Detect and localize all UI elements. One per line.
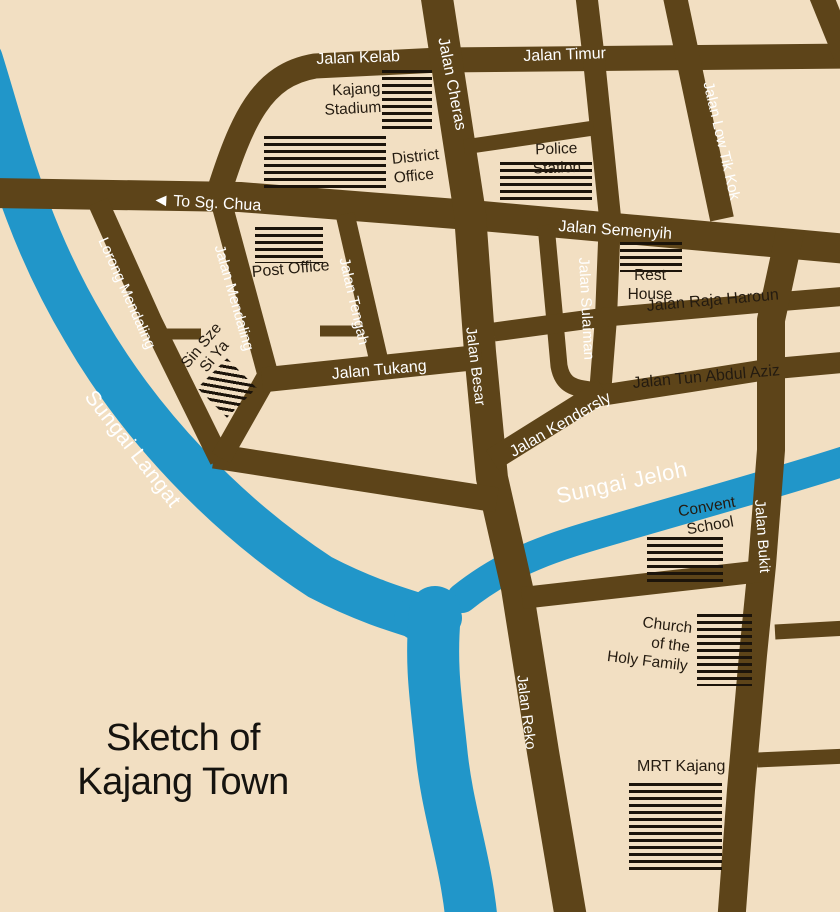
map-title-line2: Kajang Town xyxy=(63,760,303,804)
building-convent-school xyxy=(647,537,723,582)
building-church-holy-family xyxy=(697,614,752,686)
label-police-station: Police Station xyxy=(518,139,595,179)
label-mrt-kajang: MRT Kajang xyxy=(637,757,725,777)
road-label-jalan-timur: Jalan Timur xyxy=(523,45,606,66)
map-title-line1: Sketch of xyxy=(63,716,303,760)
road-label-jalan-kelab: Jalan Kelab xyxy=(316,48,400,69)
building-mrt-kajang xyxy=(629,783,722,874)
left-arrow-icon: ◀ xyxy=(155,191,167,208)
label-police-station-line2: Station xyxy=(519,158,596,180)
label-district-office: District Office xyxy=(391,146,442,189)
label-rest-house-line1: Rest xyxy=(616,267,684,286)
label-rest-house: Rest House xyxy=(616,267,684,305)
road-stub-bukit-lower xyxy=(757,756,840,760)
road-tukang-southeast-extension xyxy=(214,456,497,500)
map-border-bottom xyxy=(0,912,840,918)
road-stub-bukit-upper xyxy=(775,628,840,632)
building-district-office xyxy=(264,136,386,192)
river-merged-path xyxy=(433,612,472,918)
road-convent-church xyxy=(522,571,762,598)
kajang-town-sketch-map: Jalan Kelab Jalan Timur Jalan Cheras Jal… xyxy=(0,0,840,918)
map-title: Sketch of Kajang Town xyxy=(63,716,303,804)
label-rest-house-line2: House xyxy=(616,286,684,305)
direction-sign-label: To Sg. Chua xyxy=(173,193,262,215)
label-kajang-stadium: Kajang Stadium xyxy=(302,80,382,122)
building-kajang-stadium xyxy=(382,70,432,132)
